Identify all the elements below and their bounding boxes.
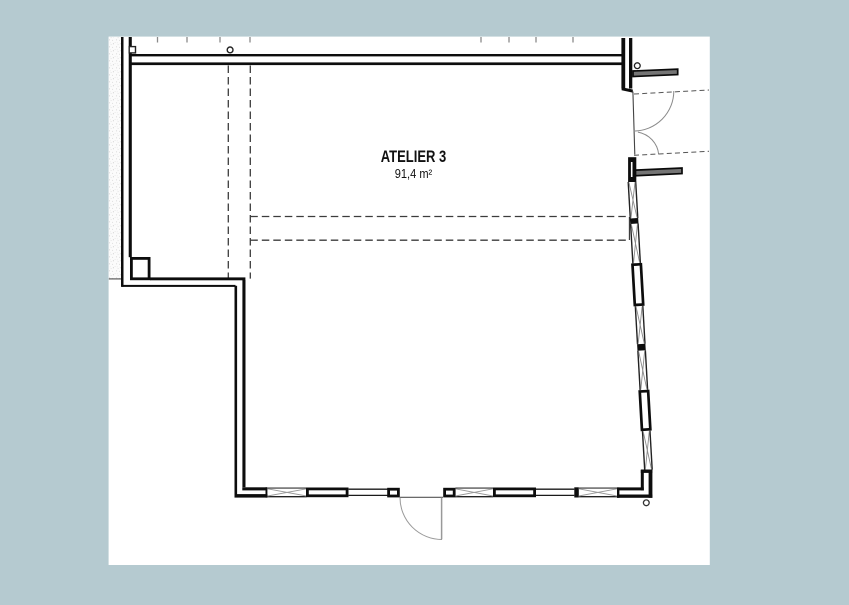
svg-text:91,4 m²: 91,4 m² <box>395 166 433 181</box>
svg-text:ATELIER 3: ATELIER 3 <box>381 148 447 166</box>
